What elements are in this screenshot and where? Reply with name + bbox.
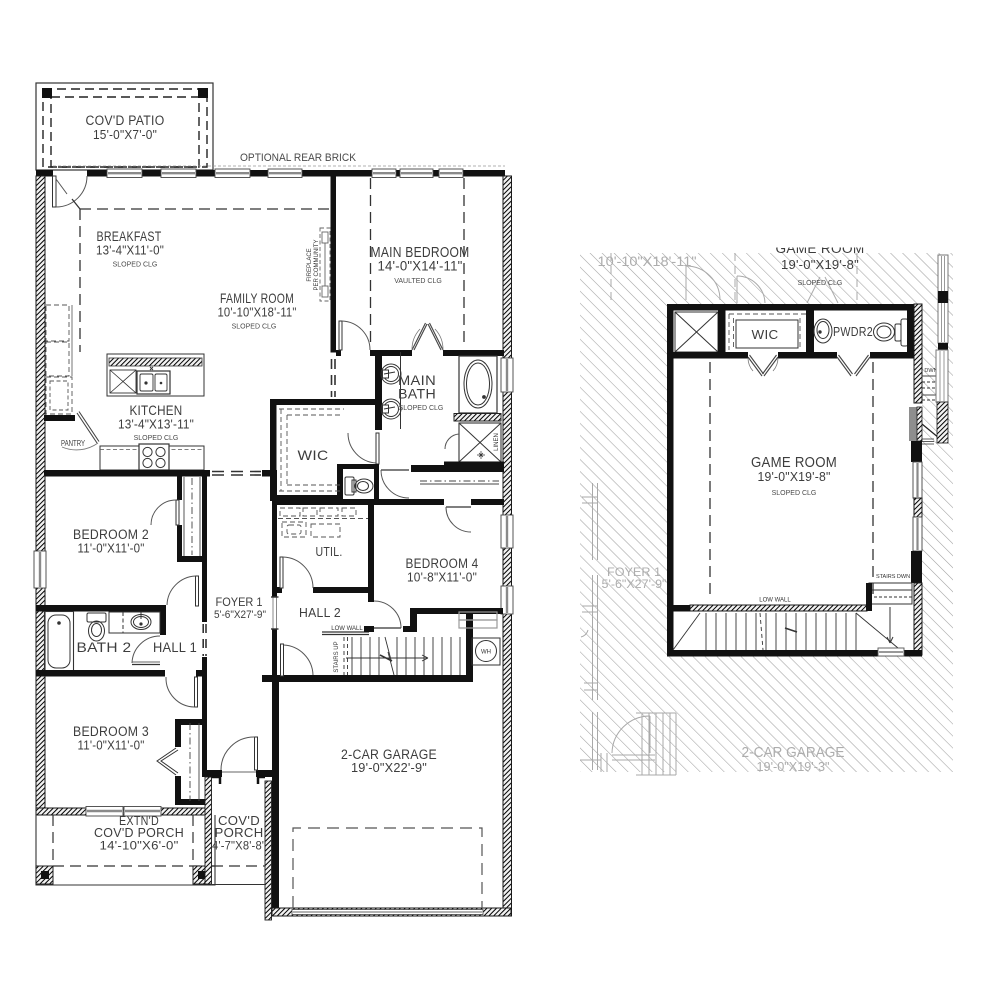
- svg-text:5'-6"X27'-9": 5'-6"X27'-9": [602, 579, 667, 591]
- svg-text:14'-0"X14'-11": 14'-0"X14'-11": [378, 259, 463, 274]
- svg-text:BEDROOM 3: BEDROOM 3: [73, 724, 149, 739]
- svg-text:10'-10"X18'-11": 10'-10"X18'-11": [598, 254, 697, 269]
- svg-text:4'-7"X8'-8": 4'-7"X8'-8": [212, 839, 266, 853]
- svg-text:11'-0"X11'-0": 11'-0"X11'-0": [78, 542, 145, 556]
- svg-text:SLOPED CLG: SLOPED CLG: [798, 280, 843, 287]
- svg-text:14'-10"X6'-0": 14'-10"X6'-0": [100, 839, 179, 853]
- svg-text:WIC: WIC: [752, 328, 779, 342]
- svg-text:SLOPED CLG: SLOPED CLG: [134, 435, 179, 442]
- svg-text:LOW WALL: LOW WALL: [331, 626, 363, 632]
- svg-text:19'-0"X19'-8": 19'-0"X19'-8": [781, 258, 859, 272]
- svg-text:13'-4"X11'-0": 13'-4"X11'-0": [96, 244, 164, 258]
- svg-text:BEDROOM 2: BEDROOM 2: [73, 527, 149, 542]
- svg-text:LINEN: LINEN: [494, 433, 500, 451]
- svg-text:SLOPED CLG: SLOPED CLG: [772, 490, 817, 497]
- svg-text:PANTRY: PANTRY: [61, 438, 85, 448]
- svg-text:PER COMMUNITY: PER COMMUNITY: [314, 240, 320, 291]
- svg-text:WH: WH: [481, 650, 491, 656]
- svg-text:5'-6"X27'-9": 5'-6"X27'-9": [214, 609, 266, 621]
- svg-text:SLOPED CLG: SLOPED CLG: [232, 324, 277, 331]
- svg-text:11'-0"X11'-0": 11'-0"X11'-0": [78, 739, 145, 753]
- svg-text:19'-0"X19'-8": 19'-0"X19'-8": [758, 469, 831, 484]
- svg-text:BATH 2: BATH 2: [77, 639, 132, 655]
- svg-text:19'-0"X19'-3": 19'-0"X19'-3": [757, 760, 830, 774]
- svg-text:STAIRS DWN: STAIRS DWN: [876, 574, 910, 580]
- svg-text:FOYER 1: FOYER 1: [607, 565, 661, 579]
- svg-text:10'-8"X11'-0": 10'-8"X11'-0": [407, 571, 477, 585]
- svg-text:HALL 1: HALL 1: [153, 639, 197, 655]
- svg-text:COV'D PATIO: COV'D PATIO: [86, 113, 165, 128]
- svg-text:FOYER 1: FOYER 1: [216, 597, 263, 609]
- svg-text:WIC: WIC: [298, 447, 329, 463]
- svg-text:PWDR2: PWDR2: [833, 324, 873, 339]
- svg-text:HALL 2: HALL 2: [299, 606, 341, 620]
- svg-text:UTIL.: UTIL.: [316, 545, 343, 559]
- svg-text:2-CAR GARAGE: 2-CAR GARAGE: [742, 745, 845, 761]
- svg-text:19'-0"X22'-9": 19'-0"X22'-9": [351, 761, 427, 775]
- svg-text:SLOPED CLG: SLOPED CLG: [399, 405, 444, 412]
- svg-text:BEDROOM 4: BEDROOM 4: [406, 556, 479, 571]
- svg-text:10'-10"X18'-11": 10'-10"X18'-11": [218, 305, 297, 320]
- svg-text:LOW WALL: LOW WALL: [759, 598, 791, 604]
- svg-text:BREAKFAST: BREAKFAST: [97, 229, 162, 244]
- svg-text:13'-4"X13'-11": 13'-4"X13'-11": [118, 417, 194, 432]
- svg-text:VAULTED CLG: VAULTED CLG: [394, 278, 442, 285]
- svg-text:2-CAR GARAGE: 2-CAR GARAGE: [341, 747, 437, 762]
- svg-text:FIREPLACE: FIREPLACE: [307, 248, 313, 281]
- svg-text:BATH: BATH: [398, 387, 436, 402]
- svg-text:15'-0"X7'-0": 15'-0"X7'-0": [93, 128, 157, 142]
- svg-text:STAIRS UP: STAIRS UP: [334, 641, 340, 672]
- svg-text:OPTIONAL REAR BRICK: OPTIONAL REAR BRICK: [240, 152, 357, 164]
- svg-text:SLOPED CLG: SLOPED CLG: [113, 262, 158, 269]
